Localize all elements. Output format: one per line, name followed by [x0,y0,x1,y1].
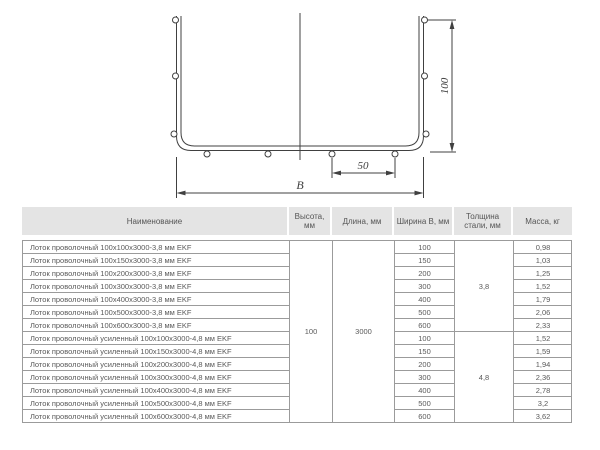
row-name: Лоток проволочный усиленный 100х100х3000… [22,331,289,344]
row-mass: 1,03 [513,253,572,266]
row-name: Лоток проволочный 100х500х3000-3,8 мм EK… [22,305,289,318]
row-mass: 1,52 [513,279,572,292]
header-name: Наименование [22,207,289,235]
row-name: Лоток проволочный 100х300х3000-3,8 мм EK… [22,279,289,292]
row-width: 100 [394,240,454,253]
row-mass: 1,59 [513,344,572,357]
row-mass: 1,25 [513,266,572,279]
row-mass: 2,78 [513,383,572,396]
merged-length-cell: 3000 [332,240,394,422]
row-width: 200 [394,266,454,279]
row-mass: 2,33 [513,318,572,331]
row-width: 300 [394,370,454,383]
row-mass: 0,98 [513,240,572,253]
spec-table: Лоток проволочный 100х100х3000-3,8 мм EK… [22,240,572,423]
merged-thickness-cell-1: 3,8 [454,240,513,331]
row-name: Лоток проволочный усиленный 100х600х3000… [22,409,289,422]
merged-thickness-cell-2: 4,8 [454,331,513,422]
row-name: Лоток проволочный 100х600х3000-3,8 мм EK… [22,318,289,331]
row-width: 150 [394,344,454,357]
dim-spacing-label: 50 [358,160,370,172]
header-length: Длина, мм [332,207,394,235]
row-mass: 3,62 [513,409,572,422]
row-name: Лоток проволочный усиленный 100х500х3000… [22,396,289,409]
row-name: Лоток проволочный 100х100х3000-3,8 мм EK… [22,240,289,253]
row-width: 400 [394,383,454,396]
row-name: Лоток проволочный усиленный 100х300х3000… [22,370,289,383]
dim-height-label: 100 [439,77,451,94]
row-width: 300 [394,279,454,292]
row-width: 500 [394,396,454,409]
merged-height-cell: 100 [289,240,332,422]
row-width: 600 [394,409,454,422]
row-name: Лоток проволочный усиленный 100х200х3000… [22,357,289,370]
row-mass: 1,79 [513,292,572,305]
table-header-row: Наименование Высота, мм Длина, мм Ширина… [22,207,572,235]
row-mass: 1,52 [513,331,572,344]
row-mass: 2,36 [513,370,572,383]
row-width: 150 [394,253,454,266]
row-name: Лоток проволочный 100х400х3000-3,8 мм EK… [22,292,289,305]
tray-cross-section-diagram: B 50 100 [0,0,600,205]
row-width: 600 [394,318,454,331]
header-width: Ширина В, мм [394,207,454,235]
row-name: Лоток проволочный усиленный 100х400х3000… [22,383,289,396]
row-name: Лоток проволочный усиленный 100х150х3000… [22,344,289,357]
row-mass: 3,2 [513,396,572,409]
datasheet-page: B 50 100 Наименование Высота, мм Длина, … [0,0,600,450]
header-thickness: Толщина стали, мм [454,207,513,235]
row-name: Лоток проволочный 100х150х3000-3,8 мм EK… [22,253,289,266]
header-height: Высота, мм [289,207,332,235]
row-width: 100 [394,331,454,344]
row-mass: 2,06 [513,305,572,318]
dim-width-label: B [296,178,304,192]
row-width: 200 [394,357,454,370]
row-width: 400 [394,292,454,305]
header-mass: Масса, кг [513,207,572,235]
row-mass: 1,94 [513,357,572,370]
row-width: 500 [394,305,454,318]
row-name: Лоток проволочный 100х200х3000-3,8 мм EK… [22,266,289,279]
